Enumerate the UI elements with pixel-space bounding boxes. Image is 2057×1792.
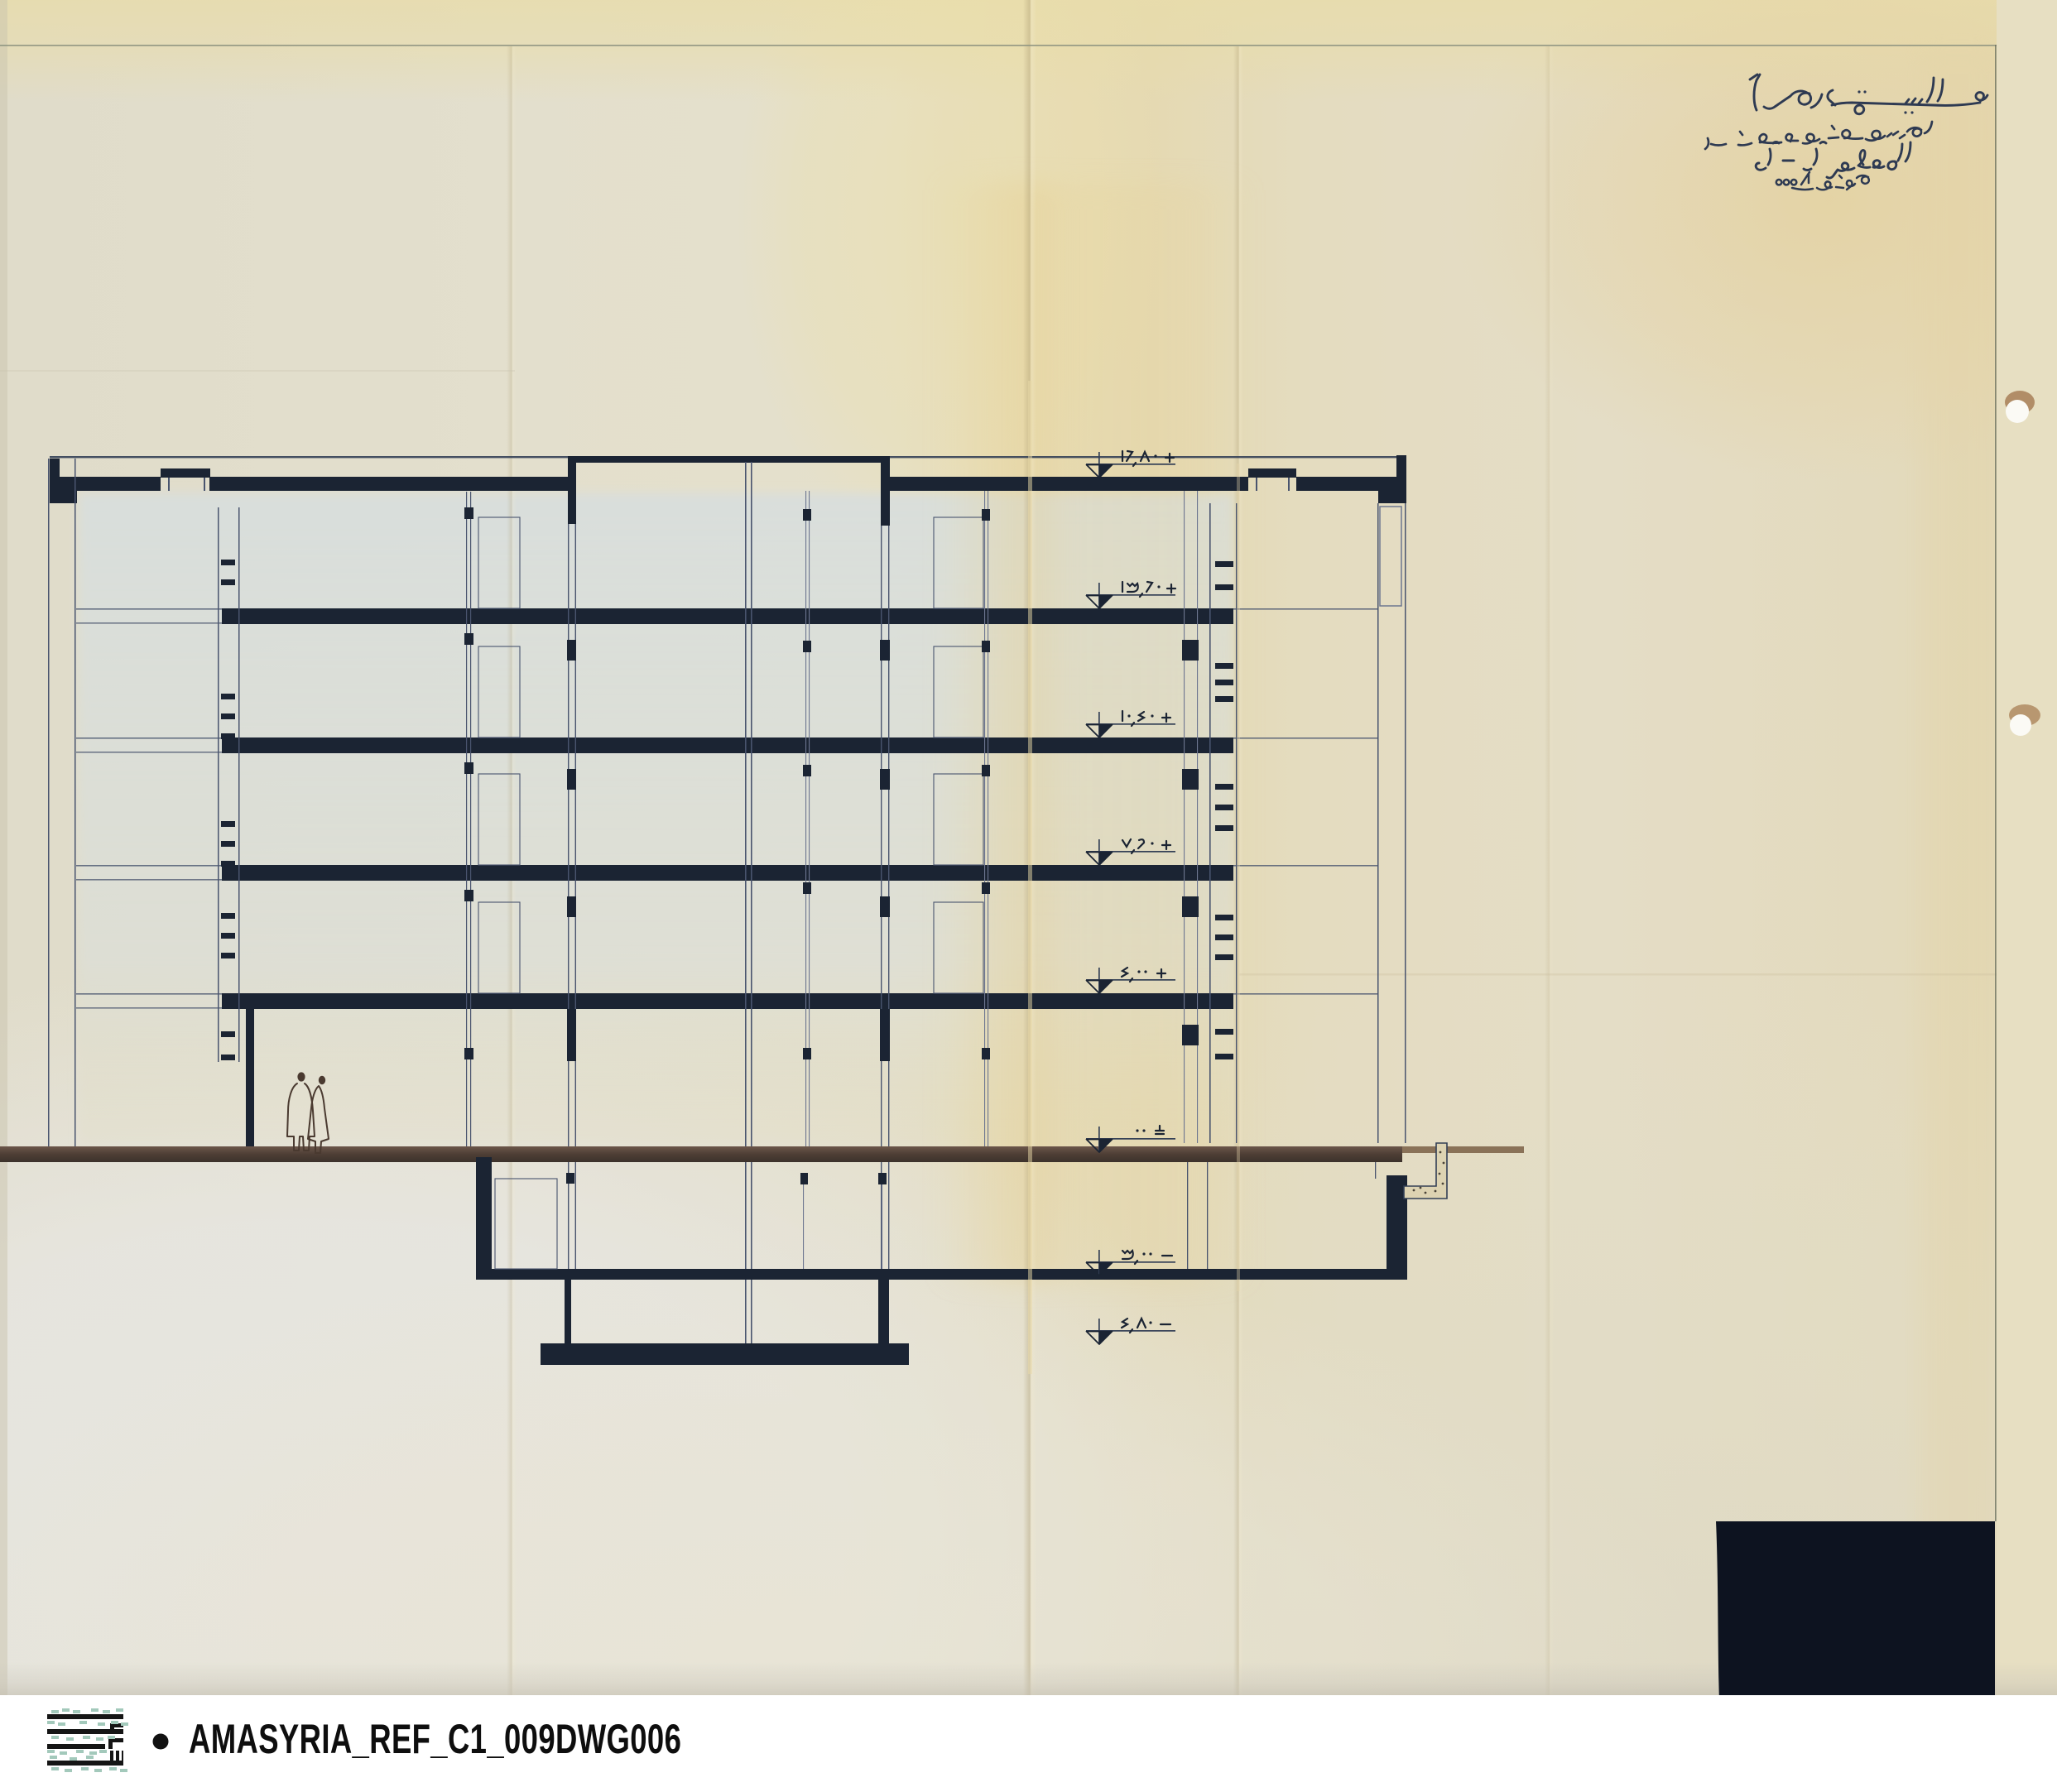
svg-text:AMASYRIA_REF_C1_009DWG006: AMASYRIA_REF_C1_009DWG006 (189, 1716, 681, 1762)
